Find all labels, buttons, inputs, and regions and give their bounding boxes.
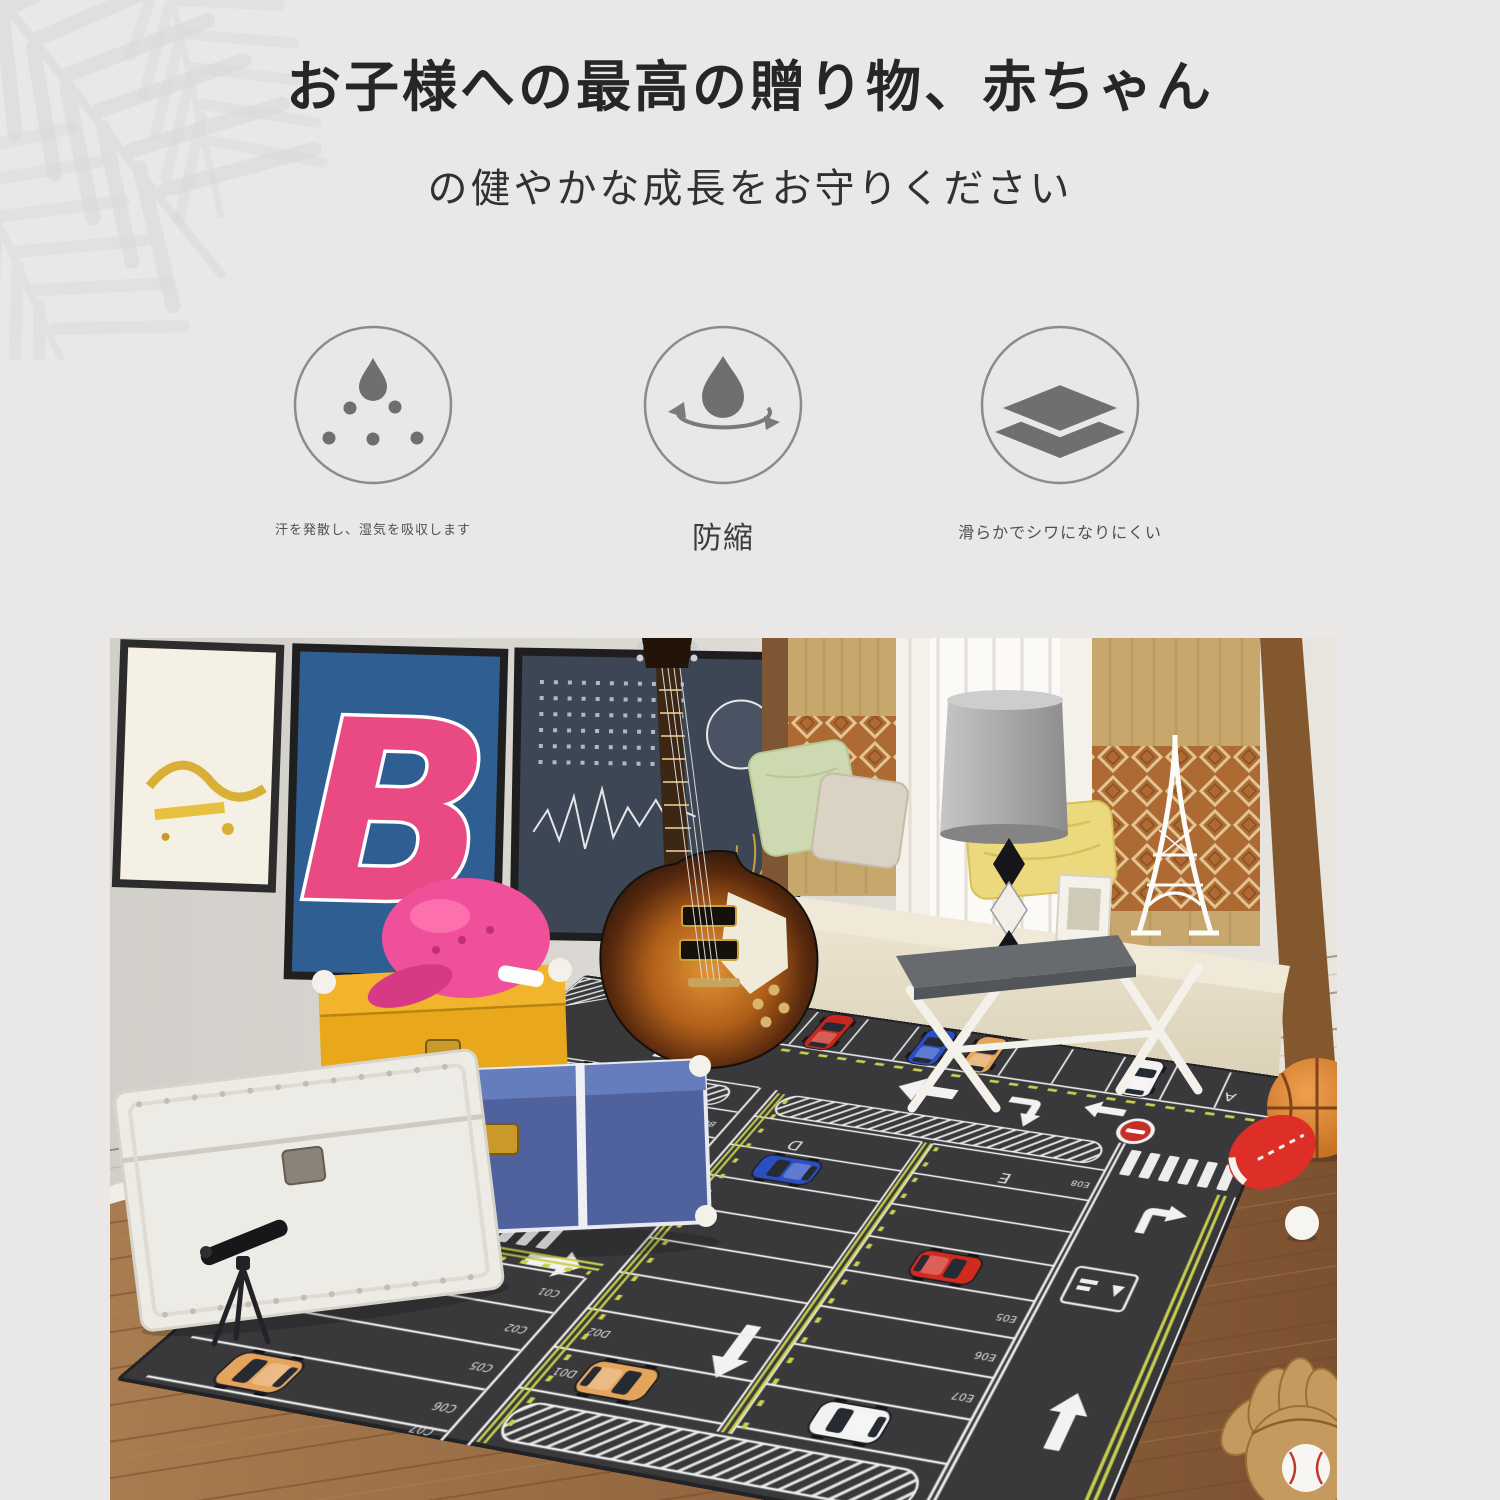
feature-caption: 汗を発散し、湿気を吸収します [203, 519, 543, 538]
table-lamp [940, 690, 1068, 978]
product-promo-page: お子様への最高の贈り物、赤ちゃん の健やかな成長をお守りください 汗を発散し、湿… [0, 0, 1500, 1500]
page-subtitle: の健やかな成長をお守りください [0, 156, 1500, 214]
trunk-white [113, 1048, 511, 1346]
baseball [1282, 1444, 1330, 1492]
baseball-glove [1211, 1356, 1337, 1500]
smooth-layers-icon [975, 320, 1145, 490]
feature-caption: 防縮 [553, 513, 893, 557]
ping-pong-ball [1285, 1206, 1319, 1242]
photo-frame-decor [1056, 875, 1111, 944]
feature-caption: 滑らかでシワになりにくい [890, 519, 1230, 543]
side-table [896, 690, 1198, 1108]
room-photo: B [110, 638, 1337, 1500]
anti-shrink-icon [638, 320, 808, 490]
page-title: お子様への最高の贈り物、赤ちゃん [0, 42, 1500, 122]
feature-anti-shrink: 防縮 [553, 320, 893, 557]
room-foreground [110, 638, 1337, 1500]
feature-sweat-wicking: 汗を発散し、湿気を吸収します [203, 320, 543, 538]
electric-guitar [600, 638, 817, 1068]
feature-smooth-layers: 滑らかでシワになりにくい [890, 320, 1230, 543]
sweat-wicking-icon [288, 320, 458, 490]
